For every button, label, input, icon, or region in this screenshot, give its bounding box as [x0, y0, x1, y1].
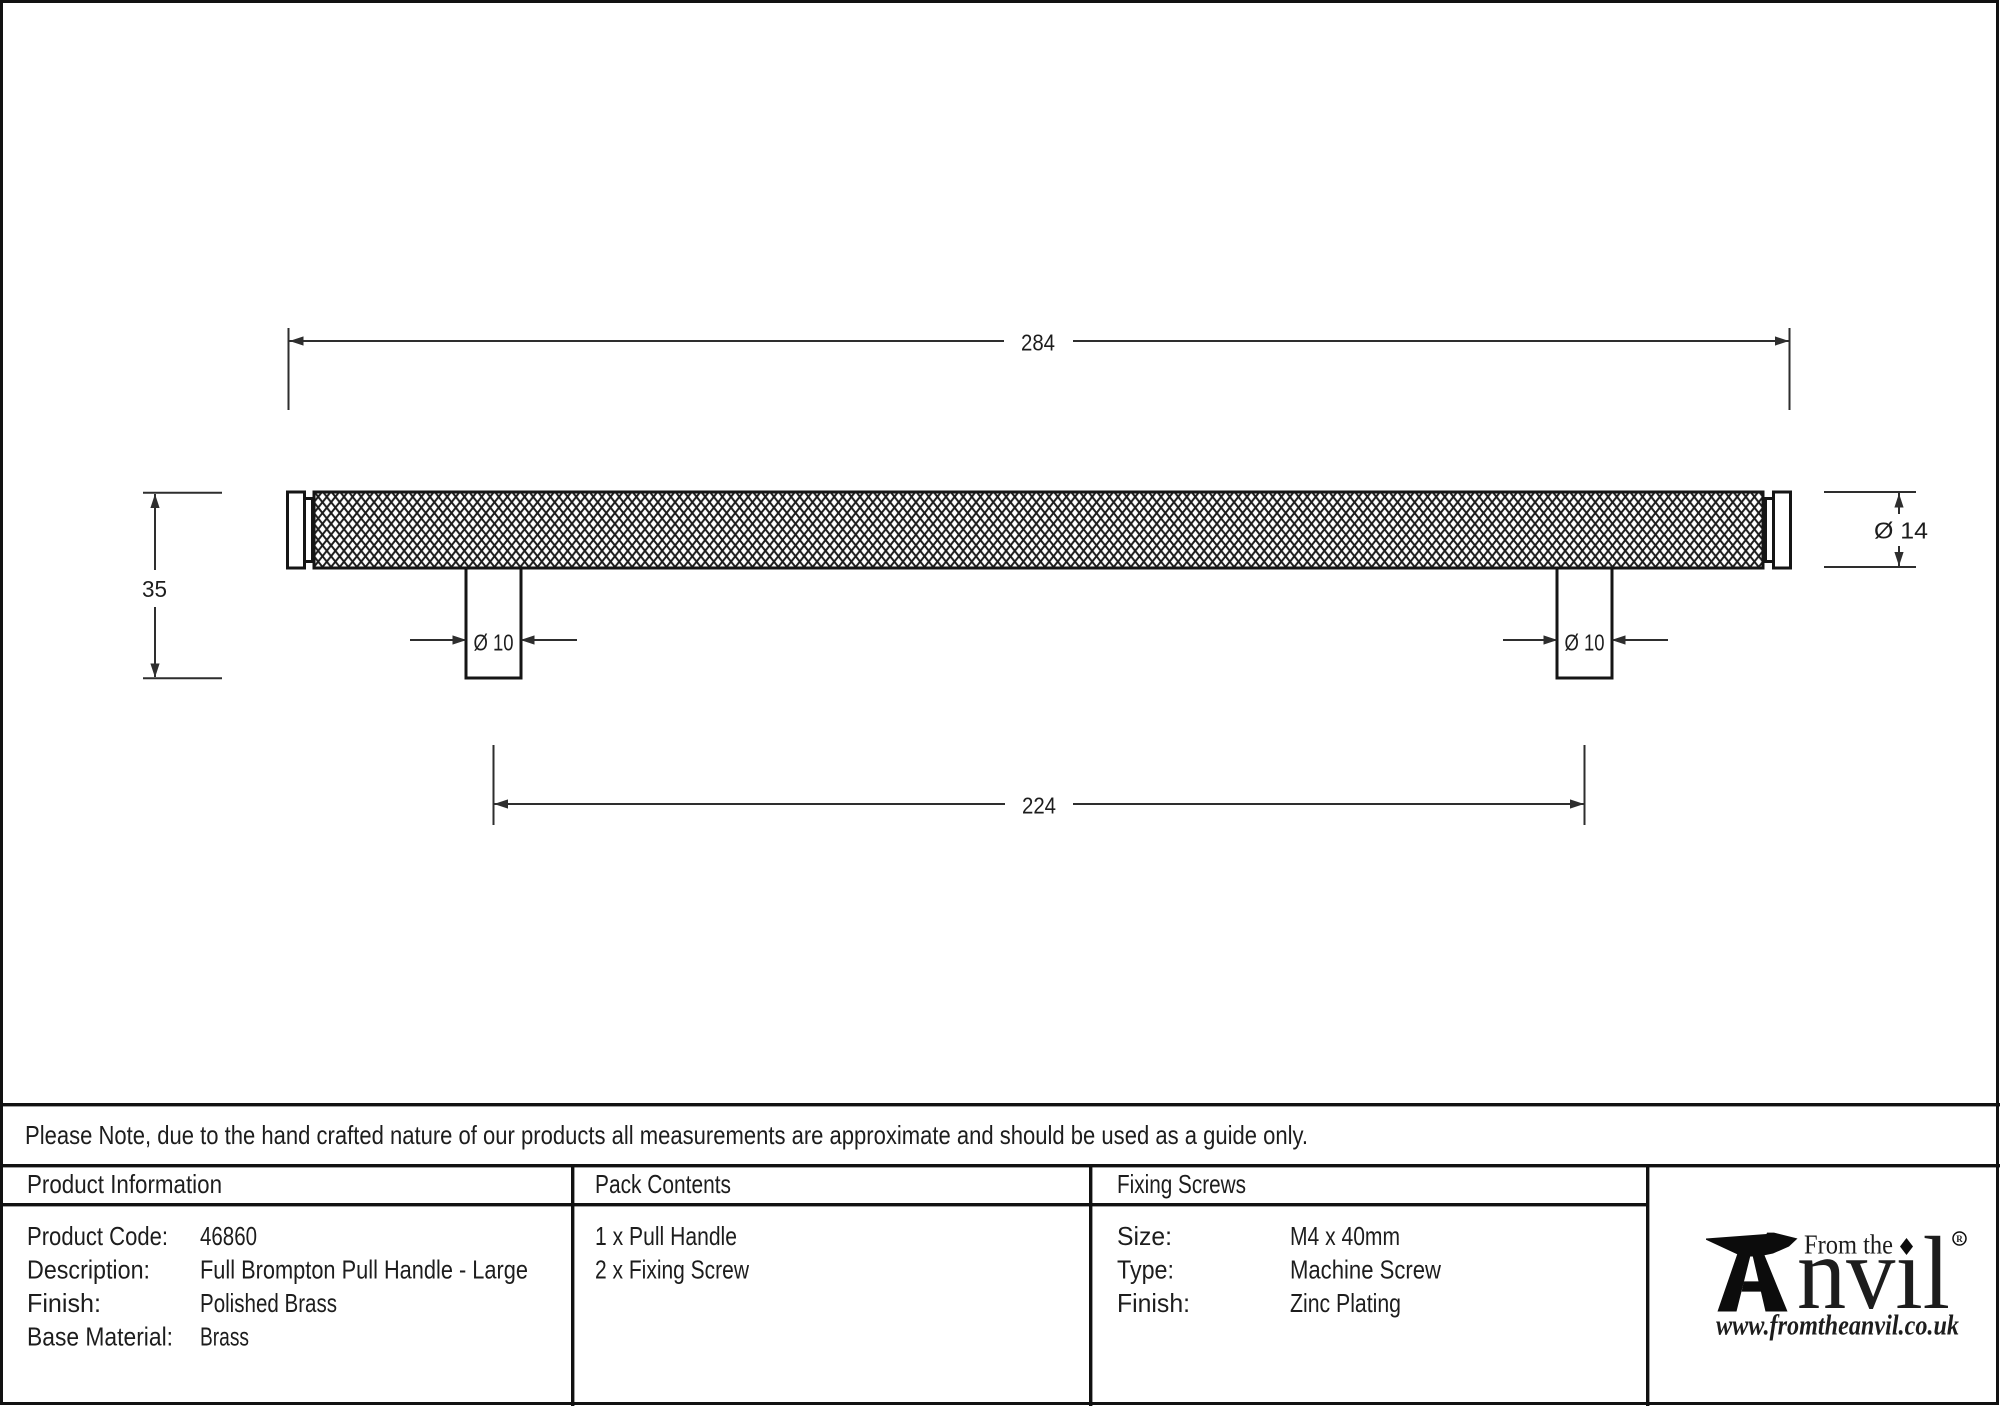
svg-text:Machine Screw: Machine Screw — [1290, 1255, 1441, 1285]
svg-text:Pack Contents: Pack Contents — [595, 1169, 731, 1199]
svg-text:Please Note, due to the hand c: Please Note, due to the hand crafted nat… — [25, 1120, 1308, 1150]
svg-text:Type:: Type: — [1117, 1255, 1174, 1285]
svg-text:224: 224 — [1022, 793, 1056, 819]
svg-text:Ø 14: Ø 14 — [1874, 518, 1928, 544]
svg-text:Size:: Size: — [1117, 1221, 1172, 1251]
svg-text:Ø 10: Ø 10 — [474, 630, 514, 656]
svg-text:Product Code:: Product Code: — [27, 1221, 168, 1251]
svg-text:Finish:: Finish: — [27, 1288, 101, 1318]
svg-text:R: R — [1956, 1234, 1963, 1244]
svg-text:Product Information: Product Information — [27, 1169, 222, 1199]
svg-text:Finish:: Finish: — [1117, 1288, 1190, 1318]
svg-text:www.fromtheanvil.co.uk: www.fromtheanvil.co.uk — [1716, 1310, 1959, 1342]
svg-text:Full Brompton Pull Handle - La: Full Brompton Pull Handle - Large — [200, 1255, 528, 1285]
svg-text:1 x Pull Handle: 1 x Pull Handle — [595, 1221, 737, 1251]
svg-text:Ø 10: Ø 10 — [1565, 630, 1605, 656]
svg-text:35: 35 — [142, 576, 167, 602]
svg-text:Zinc Plating: Zinc Plating — [1290, 1288, 1401, 1318]
svg-text:Brass: Brass — [200, 1322, 249, 1352]
svg-text:46860: 46860 — [200, 1221, 257, 1251]
svg-text:Description:: Description: — [27, 1255, 150, 1285]
svg-text:284: 284 — [1021, 330, 1055, 356]
svg-text:Fixing Screws: Fixing Screws — [1117, 1169, 1246, 1199]
svg-text:Polished Brass: Polished Brass — [200, 1288, 337, 1318]
svg-text:From the: From the — [1804, 1230, 1893, 1260]
svg-text:2 x Fixing Screw: 2 x Fixing Screw — [595, 1255, 749, 1285]
svg-text:M4 x 40mm: M4 x 40mm — [1290, 1221, 1400, 1251]
svg-text:Base Material:: Base Material: — [27, 1322, 173, 1352]
